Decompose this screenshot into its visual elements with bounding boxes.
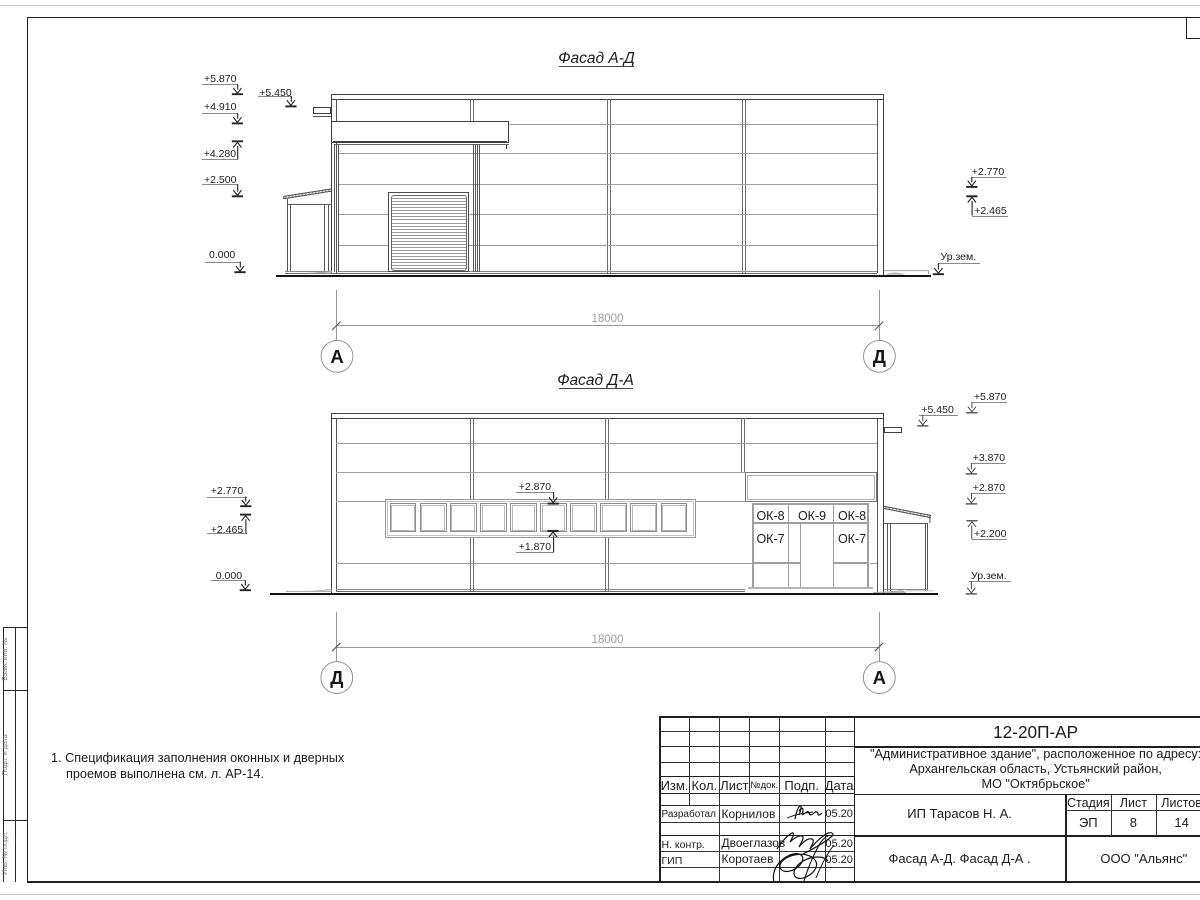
svg-text:Д: Д (873, 346, 886, 367)
svg-text:Д: Д (330, 667, 343, 688)
svg-text:А: А (330, 346, 343, 367)
svg-text:А: А (873, 667, 886, 688)
